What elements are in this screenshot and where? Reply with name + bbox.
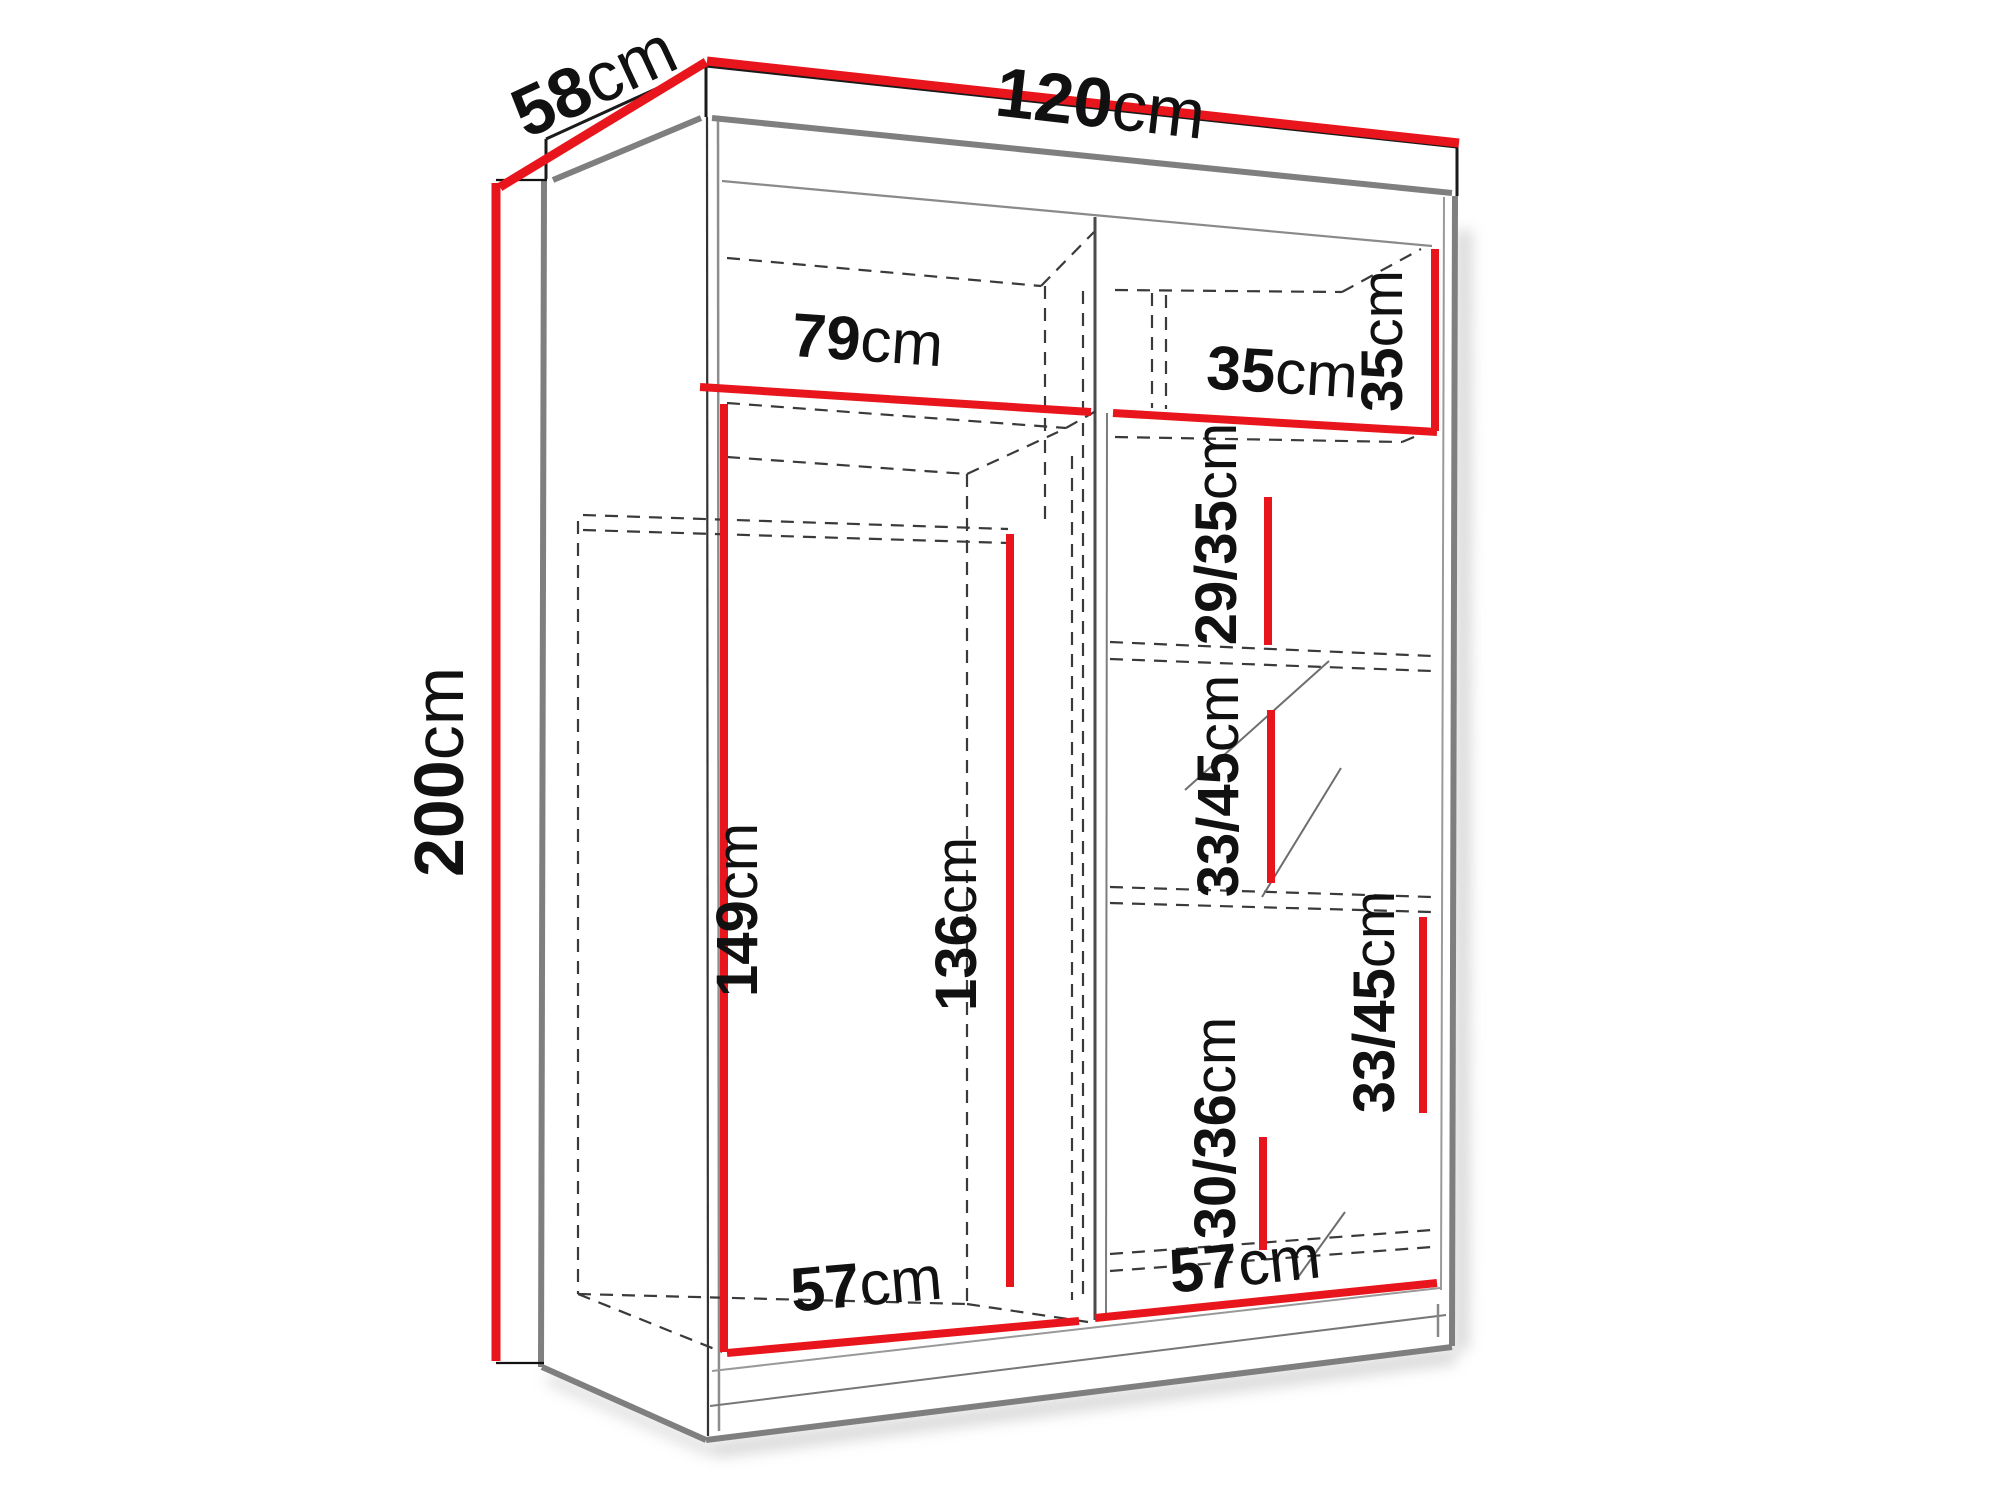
dim-label-top-right-height: 35cm bbox=[1350, 270, 1415, 412]
wardrobe-dimension-diagram: 58cm 120cm 200cm 79cm 35cm 35cm 29/35cm … bbox=[0, 0, 2000, 1500]
dim-label-height: 200cm bbox=[400, 667, 478, 877]
dim-label-hanging-right: 136cm bbox=[924, 837, 989, 1011]
dim-label-gap-33-45-mid: 33/45cm bbox=[1186, 675, 1251, 897]
dim-label-gap-33-45-right: 33/45cm bbox=[1342, 891, 1407, 1113]
cabinet-body bbox=[542, 66, 1457, 1440]
dim-label-gap-30-36: 30/36cm bbox=[1183, 1017, 1248, 1239]
dim-label-hanging-left: 149cm bbox=[705, 823, 770, 997]
dim-label-gap-29-35: 29/35cm bbox=[1184, 423, 1249, 645]
dim-label-bottom-left: 57cm bbox=[788, 1244, 945, 1326]
dim-label-top-shelf-right: 35cm bbox=[1204, 333, 1360, 411]
diagram-canvas: 58cm 120cm 200cm 79cm 35cm 35cm 29/35cm … bbox=[0, 0, 2000, 1500]
dim-label-top-shelf-left: 79cm bbox=[789, 301, 945, 380]
